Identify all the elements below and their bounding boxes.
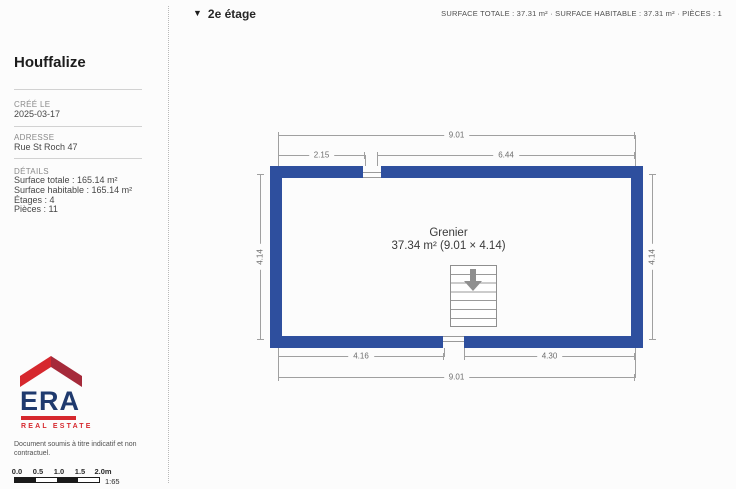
dimension-extension bbox=[278, 135, 279, 166]
disclaimer-text: Document soumis à titre indicatif et non… bbox=[14, 440, 156, 459]
property-title: Houffalize bbox=[14, 54, 86, 71]
dimension-side-left: 4.14 bbox=[260, 174, 261, 340]
dimension-extension bbox=[635, 135, 636, 166]
dimension-top-right: 6.44 bbox=[377, 155, 635, 156]
scale-bar bbox=[14, 477, 100, 483]
dimension-value: 9.01 bbox=[444, 373, 470, 382]
sidebar-separator bbox=[168, 6, 169, 483]
details-list: Surface totale : 165.14 m² Surface habit… bbox=[14, 176, 132, 215]
dimension-bottom-total: 9.01 bbox=[278, 377, 635, 378]
room-label: Grenier 37.34 m² (9.01 × 4.14) bbox=[262, 227, 635, 253]
floor-stats: SURFACE TOTALE : 37.31 m² · SURFACE HABI… bbox=[441, 9, 722, 18]
floor-header-toggle[interactable]: ▼2e étage bbox=[193, 5, 256, 23]
dimension-extension bbox=[464, 348, 465, 357]
scale-tick-label: 1.5 bbox=[75, 467, 85, 476]
door-opening bbox=[443, 336, 464, 348]
dimension-value: 4.14 bbox=[648, 244, 657, 270]
divider bbox=[14, 158, 142, 159]
divider bbox=[14, 89, 142, 90]
dimension-value: 2.15 bbox=[309, 151, 335, 160]
floor-name: 2e étage bbox=[208, 7, 256, 21]
scale-tick-label: 0.5 bbox=[33, 467, 43, 476]
dimension-extension bbox=[377, 155, 378, 166]
room-area: 37.34 m² (9.01 × 4.14) bbox=[262, 240, 635, 253]
scale-tick-label: 1.0 bbox=[54, 467, 64, 476]
dimension-value: 4.30 bbox=[537, 352, 563, 361]
dimension-extension bbox=[365, 155, 366, 166]
dimension-extension bbox=[635, 348, 636, 378]
scale-tick-label: 0.0 bbox=[12, 467, 22, 476]
era-logo-bar bbox=[21, 416, 76, 420]
detail-pieces: Pièces : 11 bbox=[14, 205, 132, 215]
window-opening bbox=[363, 166, 381, 178]
stairs-down-arrow-icon bbox=[464, 281, 482, 291]
floorplan-page: Houffalize CRÉÉ LE 2025-03-17 ADRESSE Ru… bbox=[0, 0, 736, 489]
created-value: 2025-03-17 bbox=[14, 109, 60, 119]
era-logo-tagline: REAL ESTATE bbox=[21, 423, 93, 430]
dimension-top-total: 9.01 bbox=[278, 135, 635, 136]
era-logo-wordmark: ERA bbox=[20, 386, 80, 417]
created-label: CRÉÉ LE bbox=[14, 100, 50, 109]
dimension-value: 6.44 bbox=[493, 151, 519, 160]
scale-tick-label: 2.0m bbox=[94, 467, 111, 476]
dimension-value: 4.14 bbox=[256, 244, 265, 270]
dimension-value: 9.01 bbox=[444, 131, 470, 140]
era-logo-roof-icon bbox=[20, 356, 82, 387]
dimension-extension bbox=[444, 348, 445, 357]
dimension-value: 4.16 bbox=[348, 352, 374, 361]
address-label: ADRESSE bbox=[14, 133, 54, 142]
dimension-side-right: 4.14 bbox=[652, 174, 653, 340]
triangle-down-icon: ▼ bbox=[193, 8, 202, 18]
divider bbox=[14, 126, 142, 127]
dimension-top-left: 2.15 bbox=[278, 155, 365, 156]
scale-ratio: 1:65 bbox=[105, 477, 120, 486]
room-name: Grenier bbox=[262, 227, 635, 240]
dimension-extension bbox=[278, 348, 279, 378]
address-value: Rue St Roch 47 bbox=[14, 142, 78, 152]
dimension-bottom-right: 4.30 bbox=[464, 356, 635, 357]
stairs-down-arrow-icon bbox=[470, 269, 476, 281]
dimension-bottom-left: 4.16 bbox=[278, 356, 444, 357]
